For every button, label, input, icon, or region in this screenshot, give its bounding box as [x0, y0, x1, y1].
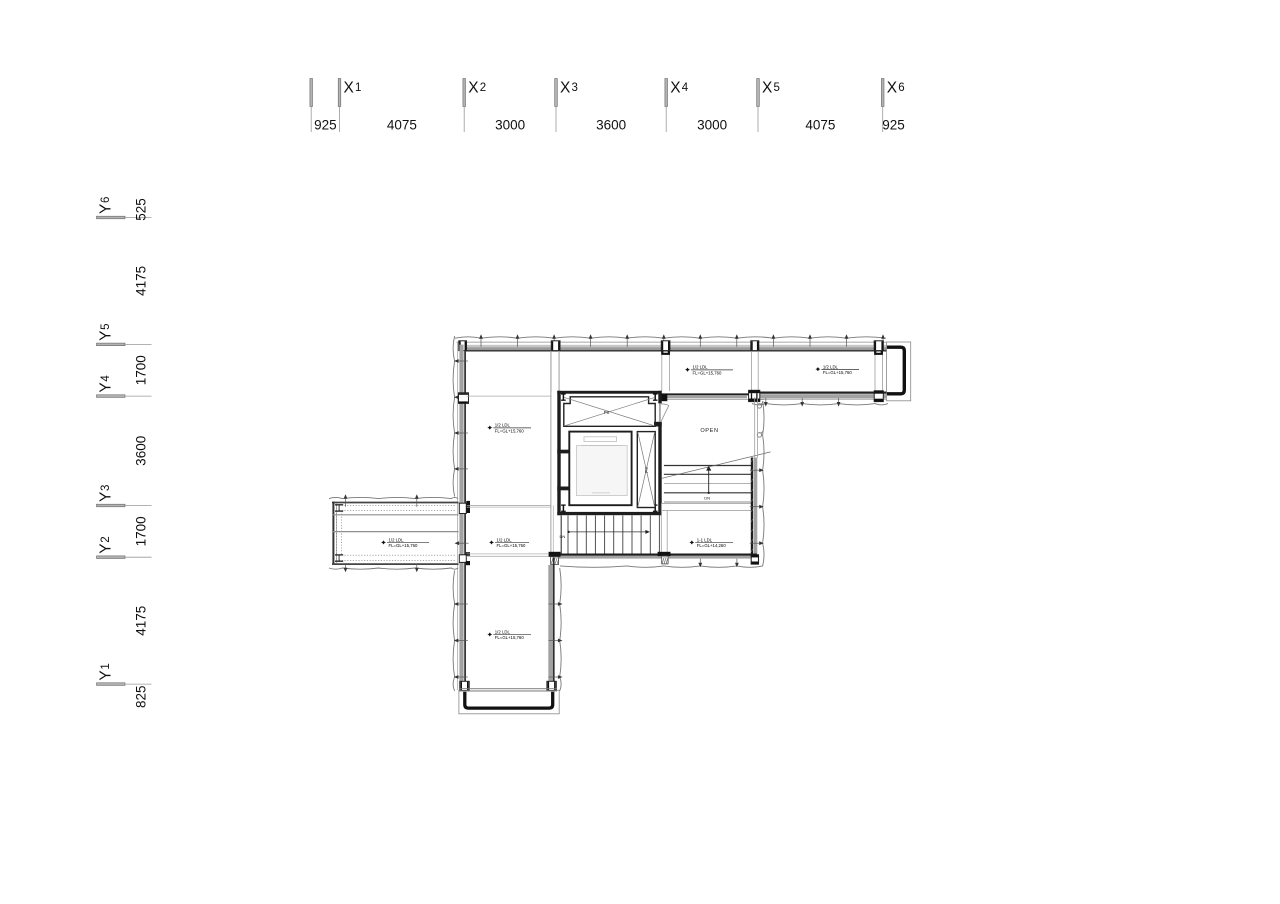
svg-text:3000: 3000 [697, 118, 727, 133]
svg-text:DN: DN [704, 496, 710, 501]
svg-text:2: 2 [100, 536, 112, 542]
svg-text:1: 1 [355, 82, 361, 94]
svg-text:3600: 3600 [596, 118, 626, 133]
svg-text:1/2 LDL: 1/2 LDL [497, 538, 513, 543]
svg-text:FL=GL+15,760: FL=GL+15,760 [495, 635, 525, 640]
svg-text:Y: Y [98, 382, 115, 392]
svg-text:4075: 4075 [387, 118, 417, 133]
svg-text:5: 5 [100, 323, 112, 329]
svg-text:925: 925 [314, 118, 337, 133]
svg-text:X: X [468, 80, 479, 97]
svg-text:X: X [887, 80, 898, 97]
svg-text:X: X [560, 80, 571, 97]
svg-text:X: X [344, 80, 355, 97]
svg-text:3: 3 [100, 485, 112, 491]
svg-text:PS: PS [644, 467, 649, 473]
svg-text:1/2 LDL: 1/2 LDL [389, 538, 405, 543]
svg-text:Y: Y [98, 492, 115, 502]
svg-text:1700: 1700 [134, 516, 149, 546]
svg-text:FL=GL+15,760: FL=GL+15,760 [495, 428, 525, 433]
svg-text:825: 825 [134, 685, 149, 708]
svg-text:FL=GL+14,260: FL=GL+14,260 [697, 543, 727, 548]
svg-text:PS: PS [604, 410, 610, 415]
svg-text:Y: Y [98, 670, 115, 680]
svg-text:4: 4 [100, 375, 112, 382]
svg-text:4175: 4175 [134, 266, 149, 296]
svg-text:X: X [762, 80, 773, 97]
svg-text:1/2 LDL: 1/2 LDL [693, 365, 709, 370]
svg-text:1/2 LDL: 1/2 LDL [823, 364, 839, 369]
svg-text:Y: Y [98, 331, 115, 341]
svg-text:3000: 3000 [495, 118, 525, 133]
svg-text:3: 3 [572, 82, 578, 94]
svg-text:1/2 LDL: 1/2 LDL [495, 423, 511, 428]
svg-text:4075: 4075 [805, 118, 835, 133]
svg-text:Y: Y [98, 543, 115, 553]
svg-text:OPEN: OPEN [700, 428, 718, 434]
svg-text:X: X [670, 80, 681, 97]
svg-text:FL=GL+15,760: FL=GL+15,760 [497, 543, 527, 548]
svg-text:4175: 4175 [134, 606, 149, 636]
svg-text:FL=GL+15,760: FL=GL+15,760 [389, 543, 419, 548]
svg-text:Y: Y [98, 204, 115, 214]
svg-text:1700: 1700 [134, 355, 149, 385]
svg-text:5: 5 [774, 82, 780, 94]
svg-text:6: 6 [898, 82, 904, 94]
svg-text:2: 2 [480, 82, 486, 94]
svg-text:1/2 LDL: 1/2 LDL [495, 630, 511, 635]
svg-text:6: 6 [100, 197, 112, 203]
svg-text:1: 1 [100, 663, 112, 669]
svg-text:DN: DN [560, 534, 566, 539]
svg-text:525: 525 [134, 198, 149, 221]
svg-text:1-1 LDL: 1-1 LDL [697, 538, 713, 543]
svg-text:3600: 3600 [134, 436, 149, 466]
svg-text:4: 4 [682, 82, 689, 94]
svg-text:FL=GL+15,760: FL=GL+15,760 [823, 370, 853, 375]
svg-text:FL=GL+15,760: FL=GL+15,760 [693, 370, 723, 375]
svg-text:925: 925 [882, 118, 905, 133]
